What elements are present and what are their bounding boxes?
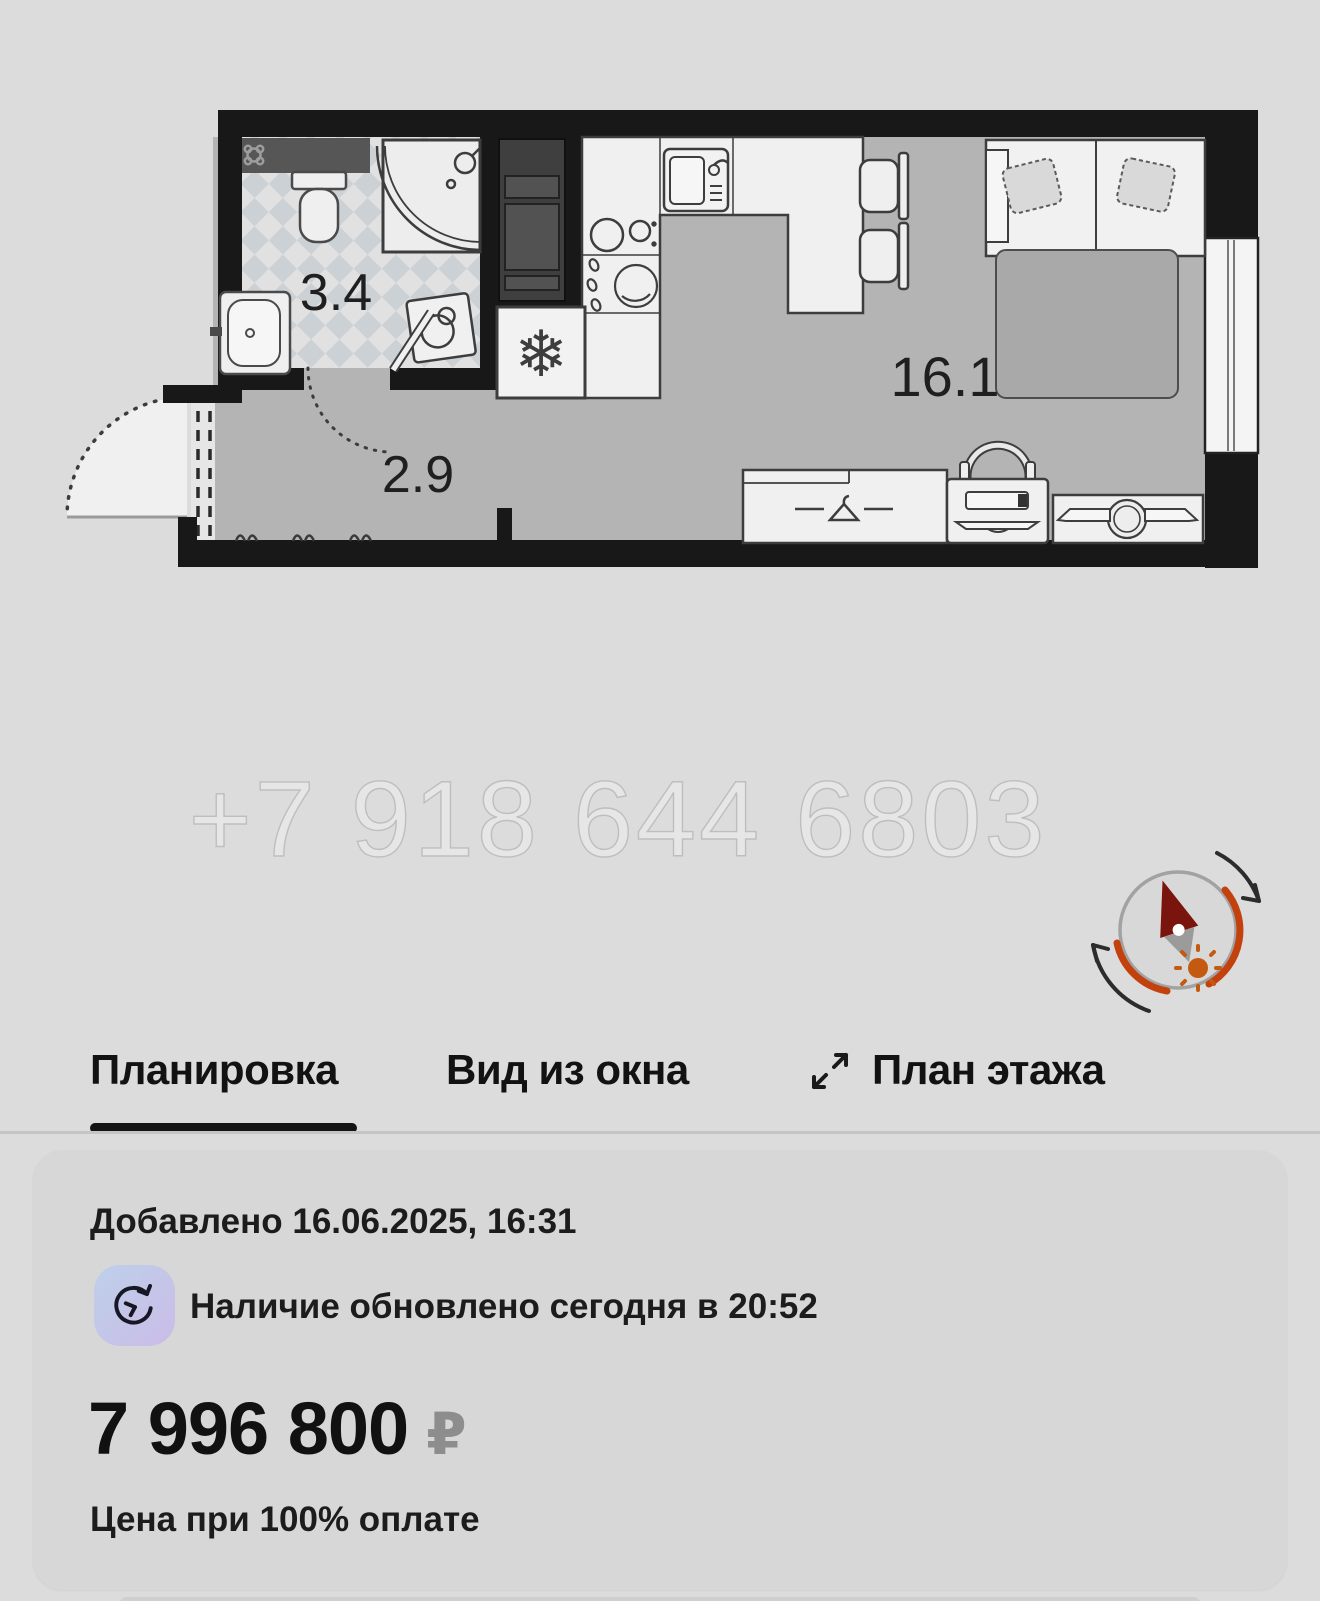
kitchen-sink: [664, 149, 728, 211]
dresser: [1053, 495, 1203, 543]
bathroom-sink: [210, 292, 290, 374]
room-area-living: 16.1: [891, 345, 1000, 408]
expand-icon[interactable]: [806, 1047, 854, 1095]
room-area-hallway: 2.9: [382, 446, 454, 504]
listing-screen: ❄: [0, 0, 1320, 1601]
snowflake-icon: ❄: [514, 318, 568, 392]
currency-symbol: ₽: [426, 1400, 466, 1468]
price-note: Цена при 100% оплате: [90, 1500, 480, 1540]
shower: [377, 140, 480, 252]
window: [1205, 238, 1258, 453]
tabs-divider: [0, 1131, 1320, 1134]
next-section-peek: [120, 1597, 1200, 1601]
added-date: Добавлено 16.06.2025, 16:31: [90, 1202, 577, 1242]
wardrobe: [743, 470, 947, 543]
clock-history-icon: [94, 1265, 175, 1346]
toilet: [292, 172, 346, 242]
bed: [986, 140, 1205, 398]
price-card: Добавлено 16.06.2025, 16:31 Наличие обно…: [33, 1150, 1287, 1590]
tab-layout[interactable]: Планировка: [90, 1046, 338, 1094]
watermark-phone: +7 918 644 6803: [189, 758, 1048, 879]
floorplan-image: ❄: [0, 0, 1320, 1030]
price-value: 7 996 800: [88, 1386, 408, 1471]
tab-floor-plan[interactable]: План этажа: [872, 1046, 1104, 1094]
sun-compass-icon[interactable]: [1093, 853, 1259, 1011]
tall-cabinet: [499, 139, 565, 301]
fridge: ❄: [497, 307, 585, 398]
availability-status: Наличие обновлено сегодня в 20:52: [190, 1287, 818, 1327]
tab-window-view[interactable]: Вид из окна: [446, 1046, 689, 1094]
price-row: 7 996 800 ₽: [88, 1386, 467, 1471]
room-area-bathroom: 3.4: [300, 264, 372, 322]
pillow: [1116, 157, 1176, 213]
